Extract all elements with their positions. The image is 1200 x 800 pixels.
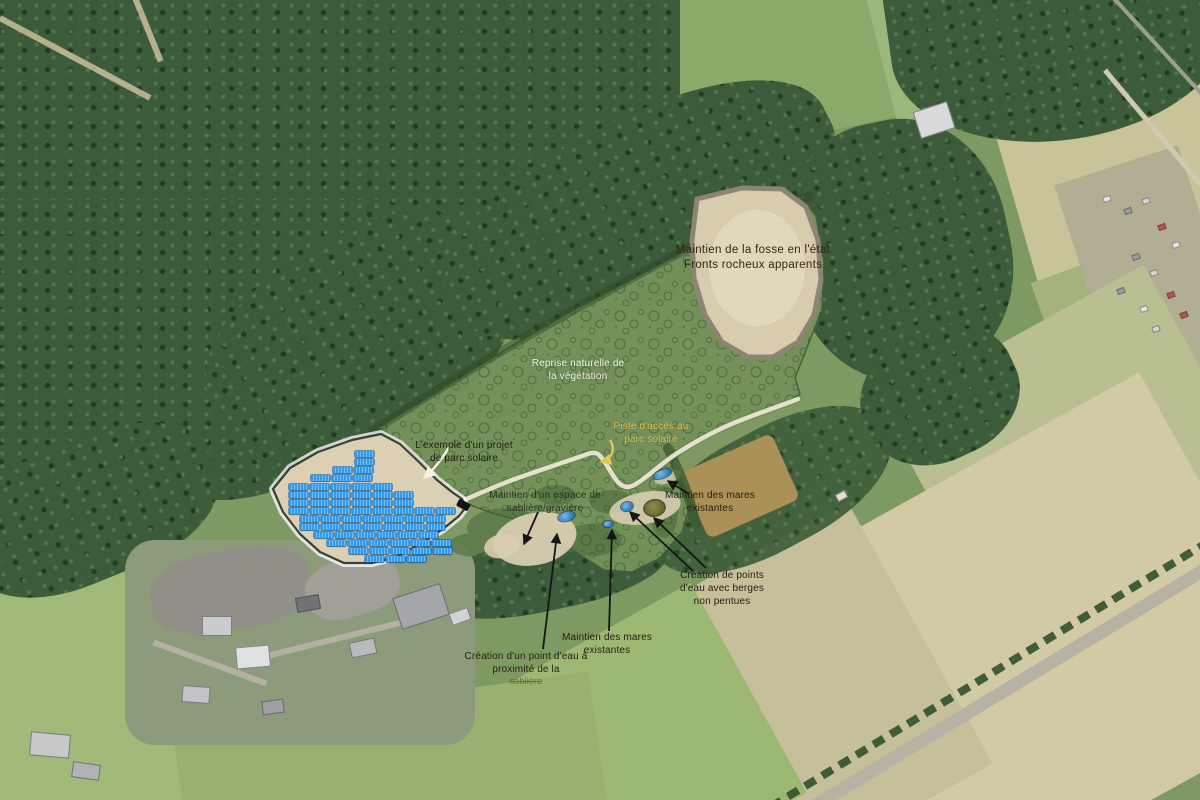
annotation-arrow-black: [630, 512, 693, 571]
label-solar-park-example: L'exemple d'un projet de parc solaire: [415, 439, 513, 465]
label-vegetation: Reprise naturelle de la végétation: [532, 357, 625, 383]
annotation-arrow-black: [609, 530, 612, 631]
label-line: proximité de la: [465, 663, 588, 676]
annotation-arrow-black: [524, 512, 538, 544]
annotation-arrow-yellow: [601, 440, 613, 462]
label-line: Création d'un point d'eau à: [465, 650, 588, 663]
label-water-point-near-pit: Création d'un point d'eau à proximité de…: [465, 650, 588, 688]
label-line: Maintien d'un espace de: [489, 489, 601, 502]
label-line: L'exemple d'un projet: [415, 439, 513, 452]
label-line: Maintien des mares: [562, 631, 652, 644]
label-line: non pentues: [680, 595, 764, 608]
label-line: Piste d'accès au: [614, 420, 689, 433]
label-quarry-pit: Maintien de la fosse en l'état Fronts ro…: [676, 243, 830, 273]
label-line: la végétation: [532, 370, 625, 383]
label-line: sablière/gravière: [489, 502, 601, 515]
aerial-map: Maintien de la fosse en l'état Fronts ro…: [0, 0, 1200, 800]
annotation-arrow-black: [543, 534, 557, 649]
label-line: Maintien des mares: [665, 489, 755, 502]
label-line: Fronts rocheux apparents: [676, 258, 830, 273]
label-line: Reprise naturelle de: [532, 357, 625, 370]
label-line: Création de points: [680, 569, 764, 582]
label-sand-pit: Maintien d'un espace de sablière/gravièr…: [489, 489, 601, 515]
label-new-water-points: Création de points d'eau avec berges non…: [680, 569, 764, 608]
label-line-struck: sablière: [465, 676, 588, 688]
label-line: existantes: [665, 502, 755, 515]
label-line: de parc solaire: [415, 452, 513, 465]
label-existing-ponds-east: Maintien des mares existantes: [665, 489, 755, 515]
label-line: parc solaire: [614, 433, 689, 446]
label-access-track: Piste d'accès au parc solaire: [614, 420, 689, 446]
annotation-arrows: [0, 0, 1200, 800]
label-line: d'eau avec berges: [680, 582, 764, 595]
label-line: Maintien de la fosse en l'état: [676, 243, 830, 258]
